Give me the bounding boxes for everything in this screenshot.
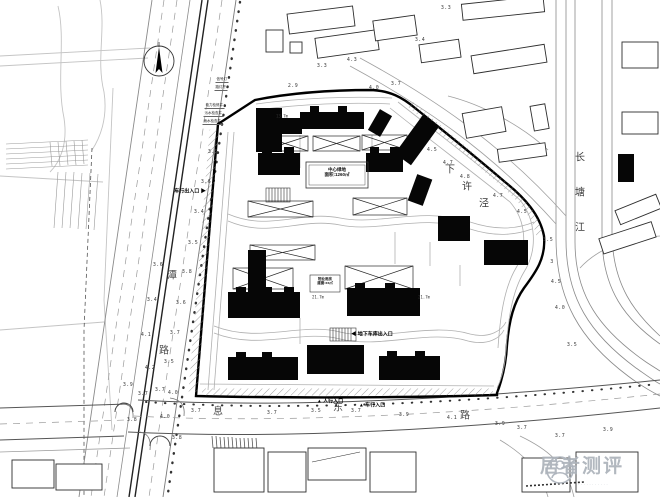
site-buildings [228,106,634,380]
west-road [79,0,240,497]
building-mass [408,174,433,206]
building-mass-central [307,345,364,374]
site-plan-drawing: 中心绿地 面积:1260㎡ 物业用房 建面:xx㎡ 居者测评 ·········… [0,0,660,497]
parking-rows [266,188,356,341]
contour-lines [0,0,150,430]
plan-linework [0,0,660,497]
building-mass [300,106,364,129]
building-mass [438,216,470,241]
building-mass [228,352,298,380]
building-mass [368,109,392,137]
internal-roads [200,97,534,390]
field-pattern [6,140,98,230]
building-mass [366,147,403,172]
north-arrow [144,42,174,76]
building-mass [379,351,440,380]
building-mass [618,154,634,182]
building-mass [484,240,528,265]
building-mass [228,287,300,318]
building-mass [256,108,302,152]
